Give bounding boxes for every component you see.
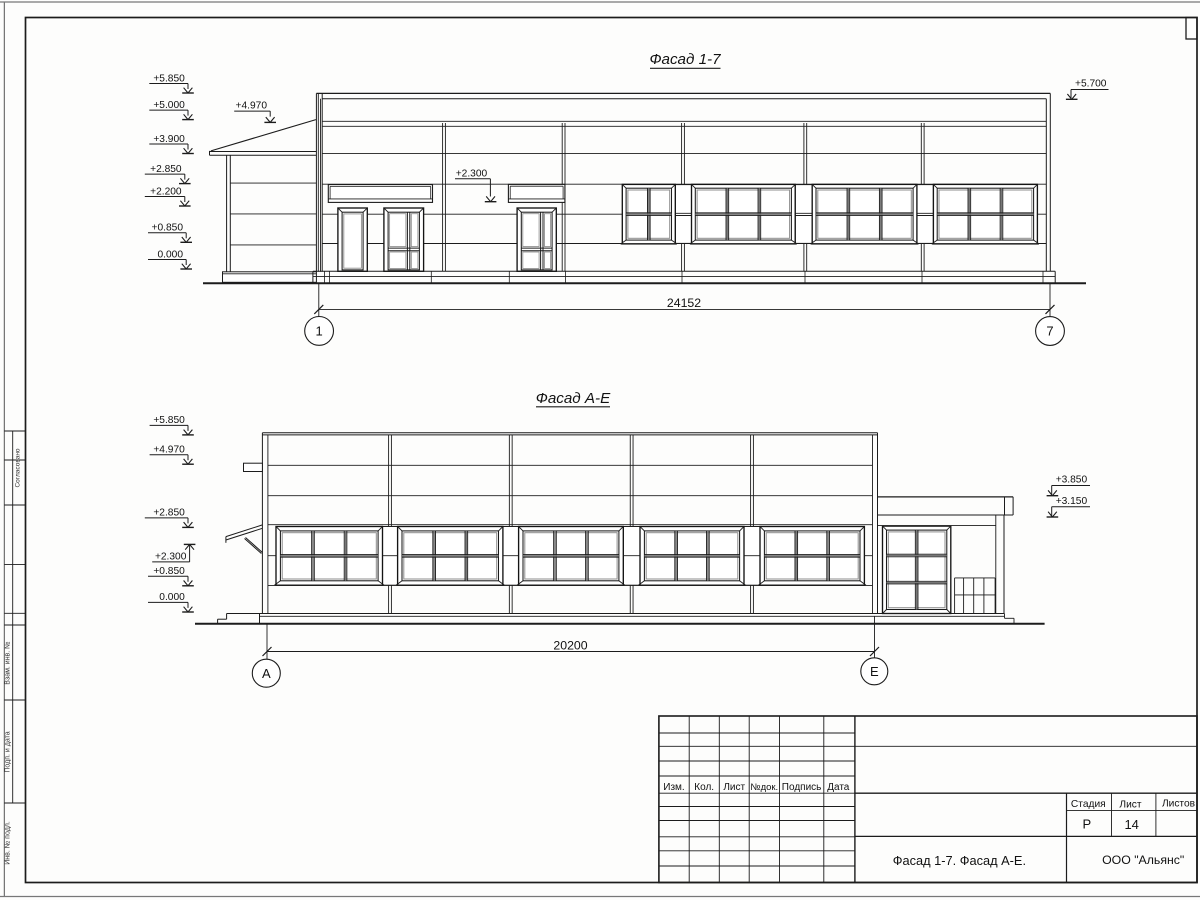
- svg-text:№док.: №док.: [750, 782, 778, 793]
- svg-text:24152: 24152: [667, 296, 701, 310]
- svg-text:+3.150: +3.150: [1056, 496, 1088, 507]
- svg-text:0.000: 0.000: [158, 249, 184, 260]
- svg-text:Фасад 1-7: Фасад 1-7: [649, 51, 721, 68]
- svg-text:+2.850: +2.850: [153, 508, 185, 519]
- svg-text:7: 7: [1046, 324, 1053, 339]
- svg-text:+3.850: +3.850: [1056, 475, 1088, 486]
- svg-text:+5.850: +5.850: [153, 415, 185, 426]
- svg-text:+2.300: +2.300: [456, 168, 488, 179]
- svg-text:+3.900: +3.900: [153, 134, 185, 145]
- svg-text:ООО "Альянс": ООО "Альянс": [1102, 853, 1184, 867]
- svg-text:Листов: Листов: [1162, 799, 1195, 810]
- svg-text:Изм.: Изм.: [663, 782, 684, 793]
- svg-text:20200: 20200: [553, 638, 587, 652]
- svg-text:+2.300: +2.300: [155, 552, 187, 563]
- svg-text:+2.200: +2.200: [150, 186, 182, 197]
- svg-text:0.000: 0.000: [159, 592, 185, 603]
- svg-text:+2.850: +2.850: [150, 164, 182, 175]
- svg-text:1: 1: [315, 324, 322, 339]
- svg-text:Согласовано: Согласовано: [15, 448, 22, 487]
- svg-text:+5.000: +5.000: [153, 100, 185, 111]
- svg-text:Р: Р: [1082, 817, 1091, 832]
- svg-text:Лист: Лист: [1119, 800, 1141, 811]
- svg-text:Фасад 1-7. Фасад А-Е.: Фасад 1-7. Фасад А-Е.: [893, 853, 1026, 868]
- svg-text:Дата: Дата: [827, 782, 850, 793]
- svg-text:Лист: Лист: [723, 782, 745, 793]
- svg-text:Фасад А-Е: Фасад А-Е: [536, 390, 611, 407]
- svg-text:+4.970: +4.970: [153, 445, 185, 456]
- svg-text:Подп. и дата: Подп. и дата: [5, 731, 12, 772]
- svg-text:+4.970: +4.970: [236, 101, 268, 112]
- svg-text:+5.700: +5.700: [1075, 79, 1107, 90]
- svg-text:+0.850: +0.850: [152, 223, 184, 234]
- svg-text:Кол.: Кол.: [694, 782, 714, 793]
- svg-text:+0.850: +0.850: [153, 566, 185, 577]
- svg-text:Инв. № подл.: Инв. № подл.: [5, 821, 12, 865]
- svg-text:Подпись: Подпись: [782, 782, 822, 793]
- svg-text:14: 14: [1124, 817, 1138, 832]
- svg-text:Стадия: Стадия: [1071, 799, 1106, 810]
- svg-text:Е: Е: [870, 664, 879, 679]
- svg-text:А: А: [262, 666, 271, 681]
- svg-text:+5.850: +5.850: [153, 73, 185, 84]
- svg-text:Взам. инв. №: Взам. инв. №: [5, 641, 12, 684]
